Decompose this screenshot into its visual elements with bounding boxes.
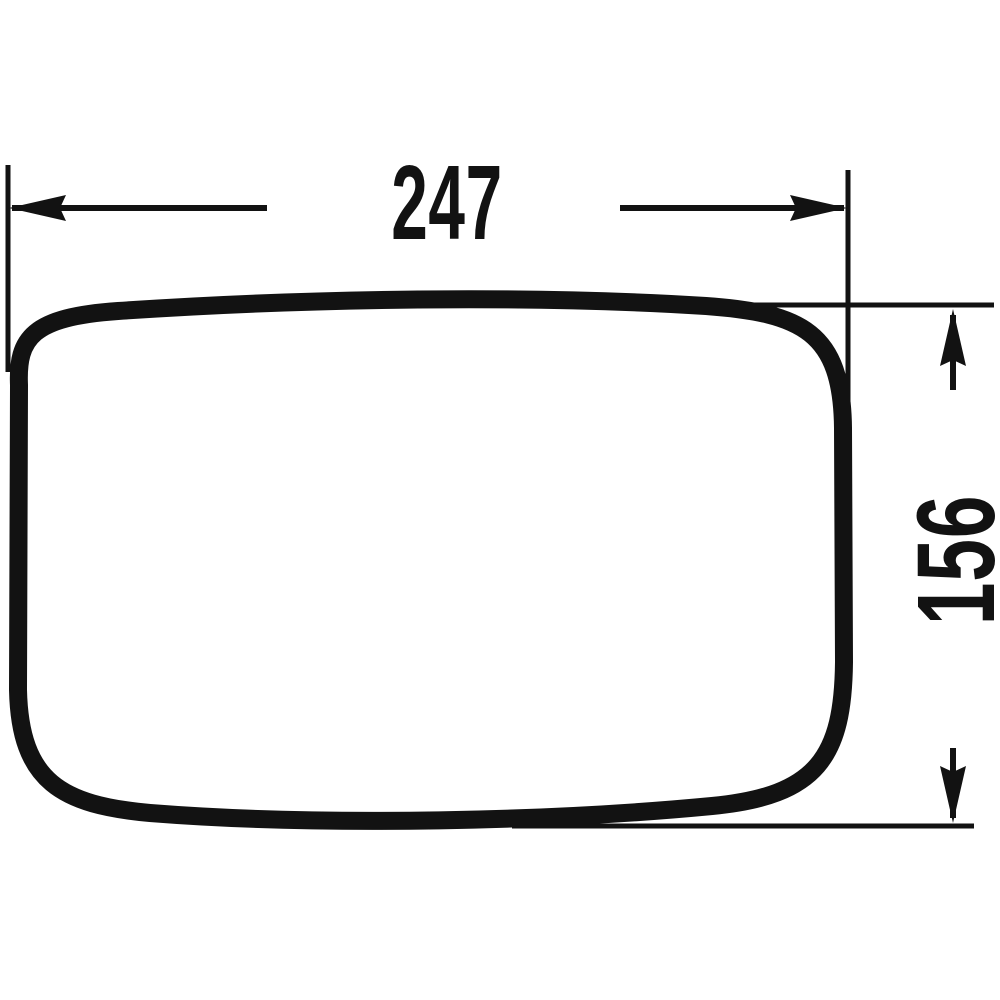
width-dimension-label: 247: [391, 143, 503, 262]
height-arrow-up-icon: [940, 309, 966, 366]
technical-drawing: 247 156: [0, 0, 1000, 1000]
drawing-canvas: 247 156: [0, 0, 1000, 1000]
height-dimension-label: 156: [896, 495, 1000, 626]
width-arrow-left-icon: [9, 195, 66, 221]
height-dimension: 156: [512, 305, 1000, 826]
height-arrow-down-icon: [940, 766, 966, 823]
width-arrow-right-icon: [790, 195, 847, 221]
part-outline: [18, 299, 844, 821]
